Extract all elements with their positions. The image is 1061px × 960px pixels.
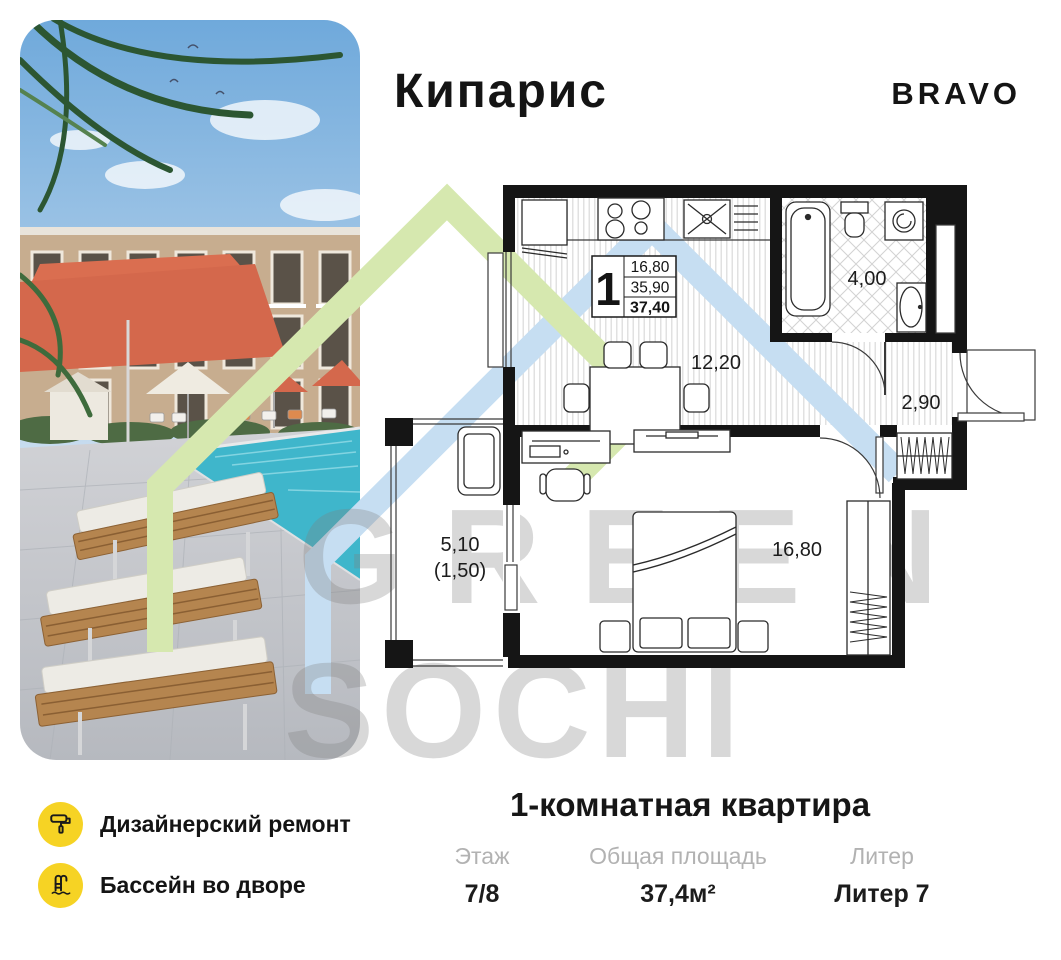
features-list: Дизайнерский ремонт Бассейн во дворе [38, 801, 351, 923]
summary-label: Этаж [412, 843, 552, 870]
feature-badge [38, 802, 83, 847]
hallway-area-label: 2,90 [902, 392, 941, 414]
balcony-reduced-area-label: (1,50) [434, 560, 486, 582]
feature-item: Дизайнерский ремонт [38, 801, 351, 847]
feature-badge [38, 863, 83, 908]
coat-closet [897, 433, 952, 479]
summary-total-area: Общая площадь 37,4м² [578, 843, 778, 909]
apartment-type-title: 1-комнатная квартира [380, 786, 1000, 824]
area-living: 16,80 [631, 259, 670, 276]
balcony-door [503, 562, 520, 613]
area-no-balcony: 35,90 [631, 280, 670, 297]
desk [522, 431, 610, 463]
bathroom-sink [897, 283, 926, 332]
rooms-count: 1 [595, 263, 621, 315]
summary-label: Общая площадь [578, 843, 778, 870]
feature-item: Бассейн во дворе [38, 862, 351, 908]
toilet [841, 202, 868, 237]
tv-stand [634, 430, 730, 452]
bedroom-balcony-window [503, 505, 520, 562]
feature-label: Дизайнерский ремонт [100, 811, 351, 838]
feature-label: Бассейн во дворе [100, 872, 306, 899]
summary-value: Литер 7 [802, 880, 962, 909]
summary-liter: Литер Литер 7 [802, 843, 962, 909]
bedroom-area-label: 16,80 [772, 539, 822, 561]
bathroom-area-label: 4,00 [848, 268, 887, 290]
summary-floor: Этаж 7/8 [412, 843, 552, 909]
stove [598, 198, 664, 240]
kitchen-area-label: 12,20 [691, 352, 741, 374]
summary-label: Литер [802, 843, 962, 870]
paint-roller-icon [48, 811, 74, 837]
duct-shaft [936, 225, 955, 333]
pool-ladder-icon [48, 872, 74, 898]
bathtub [786, 202, 830, 316]
flyer-canvas: Кипарис BRAVO GREEN SOCHI [0, 0, 1061, 960]
summary-value: 37,4м² [578, 880, 778, 909]
entrance-landing [967, 350, 1035, 420]
washing-machine [885, 202, 923, 240]
desk-chair [540, 469, 590, 501]
summary-value: 7/8 [412, 880, 552, 909]
balcony-area-label: 5,10 [441, 534, 480, 556]
exterior-basket [488, 253, 503, 367]
stat-box: 1 16,80 35,90 37,40 [592, 256, 676, 317]
wardrobe [847, 501, 890, 655]
balcony-bench [458, 427, 500, 495]
area-total: 37,40 [630, 300, 670, 317]
